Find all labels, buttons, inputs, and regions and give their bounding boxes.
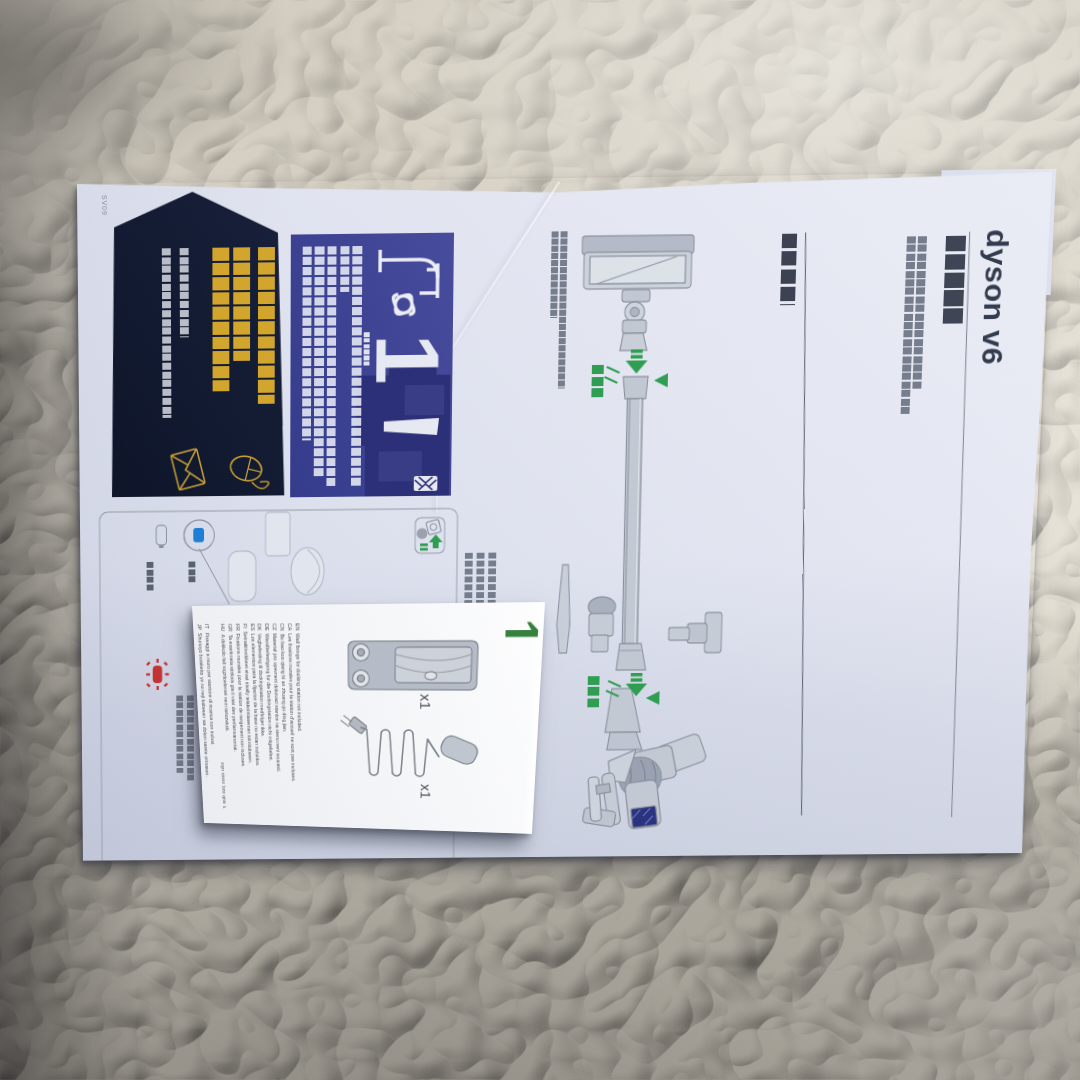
svg-text:1: 1 [358, 333, 454, 385]
